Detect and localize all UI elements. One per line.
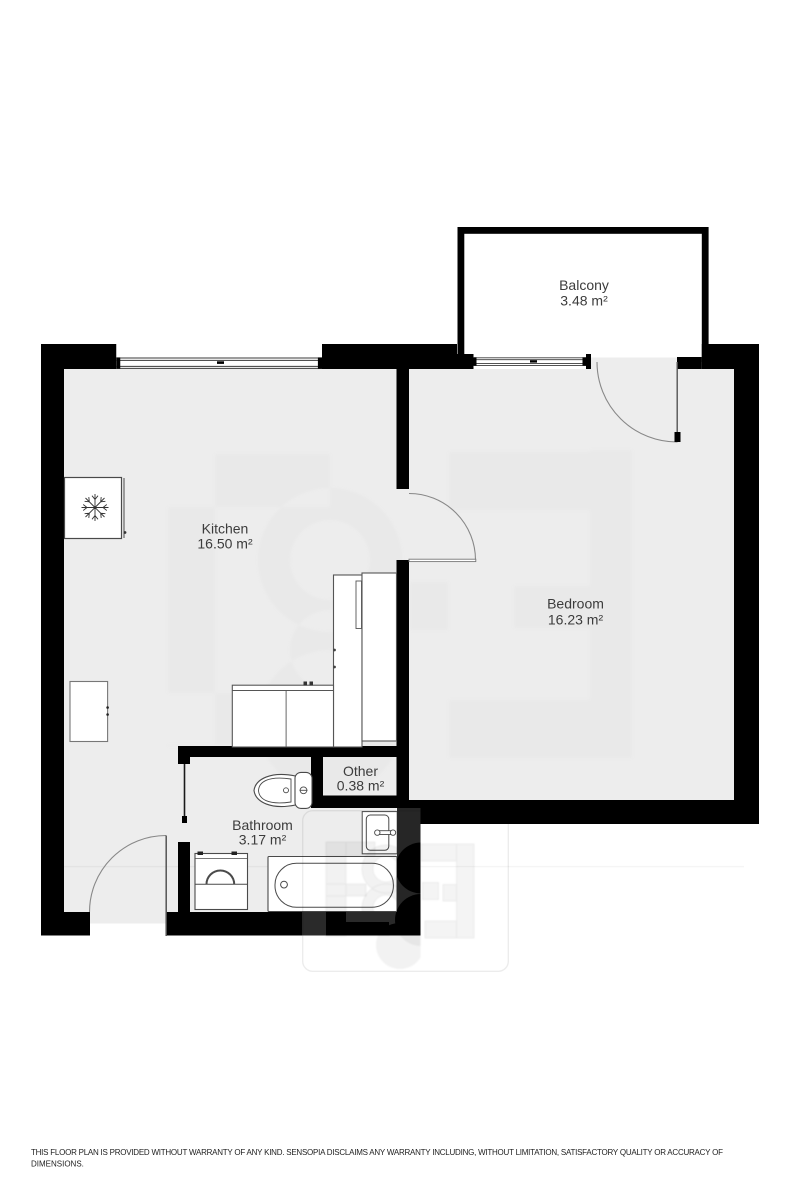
svg-text:Balcony: Balcony	[559, 277, 609, 293]
svg-text:DIMENSIONS.: DIMENSIONS.	[31, 1160, 84, 1169]
svg-text:Kitchen: Kitchen	[202, 521, 249, 537]
svg-text:Bedroom: Bedroom	[547, 596, 604, 612]
svg-text:16.50 m²: 16.50 m²	[197, 536, 253, 552]
svg-text:THIS FLOOR PLAN IS PROVIDED WI: THIS FLOOR PLAN IS PROVIDED WITHOUT WARR…	[31, 1148, 723, 1157]
svg-text:16.23 m²: 16.23 m²	[548, 612, 604, 628]
svg-text:3.17 m²: 3.17 m²	[239, 832, 287, 848]
svg-text:3.48 m²: 3.48 m²	[560, 293, 608, 309]
svg-text:0.38 m²: 0.38 m²	[337, 778, 385, 794]
